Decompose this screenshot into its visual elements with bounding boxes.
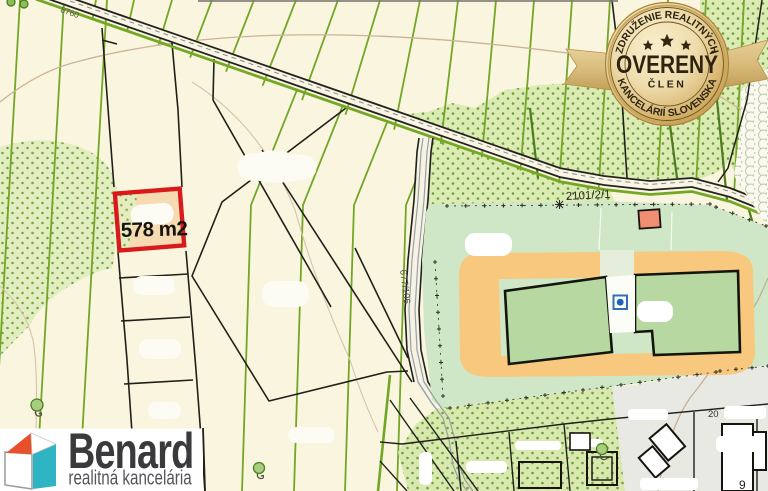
svg-text:OVERENÝ: OVERENÝ <box>616 49 718 79</box>
svg-text:realitná kancelária: realitná kancelária <box>68 466 191 489</box>
svg-text:ČLEN: ČLEN <box>648 78 687 91</box>
svg-text:9: 9 <box>739 478 746 491</box>
svg-text:578 m2: 578 m2 <box>121 217 188 242</box>
svg-text:20: 20 <box>708 409 719 420</box>
svg-text:2101/2/1: 2101/2/1 <box>566 189 611 203</box>
